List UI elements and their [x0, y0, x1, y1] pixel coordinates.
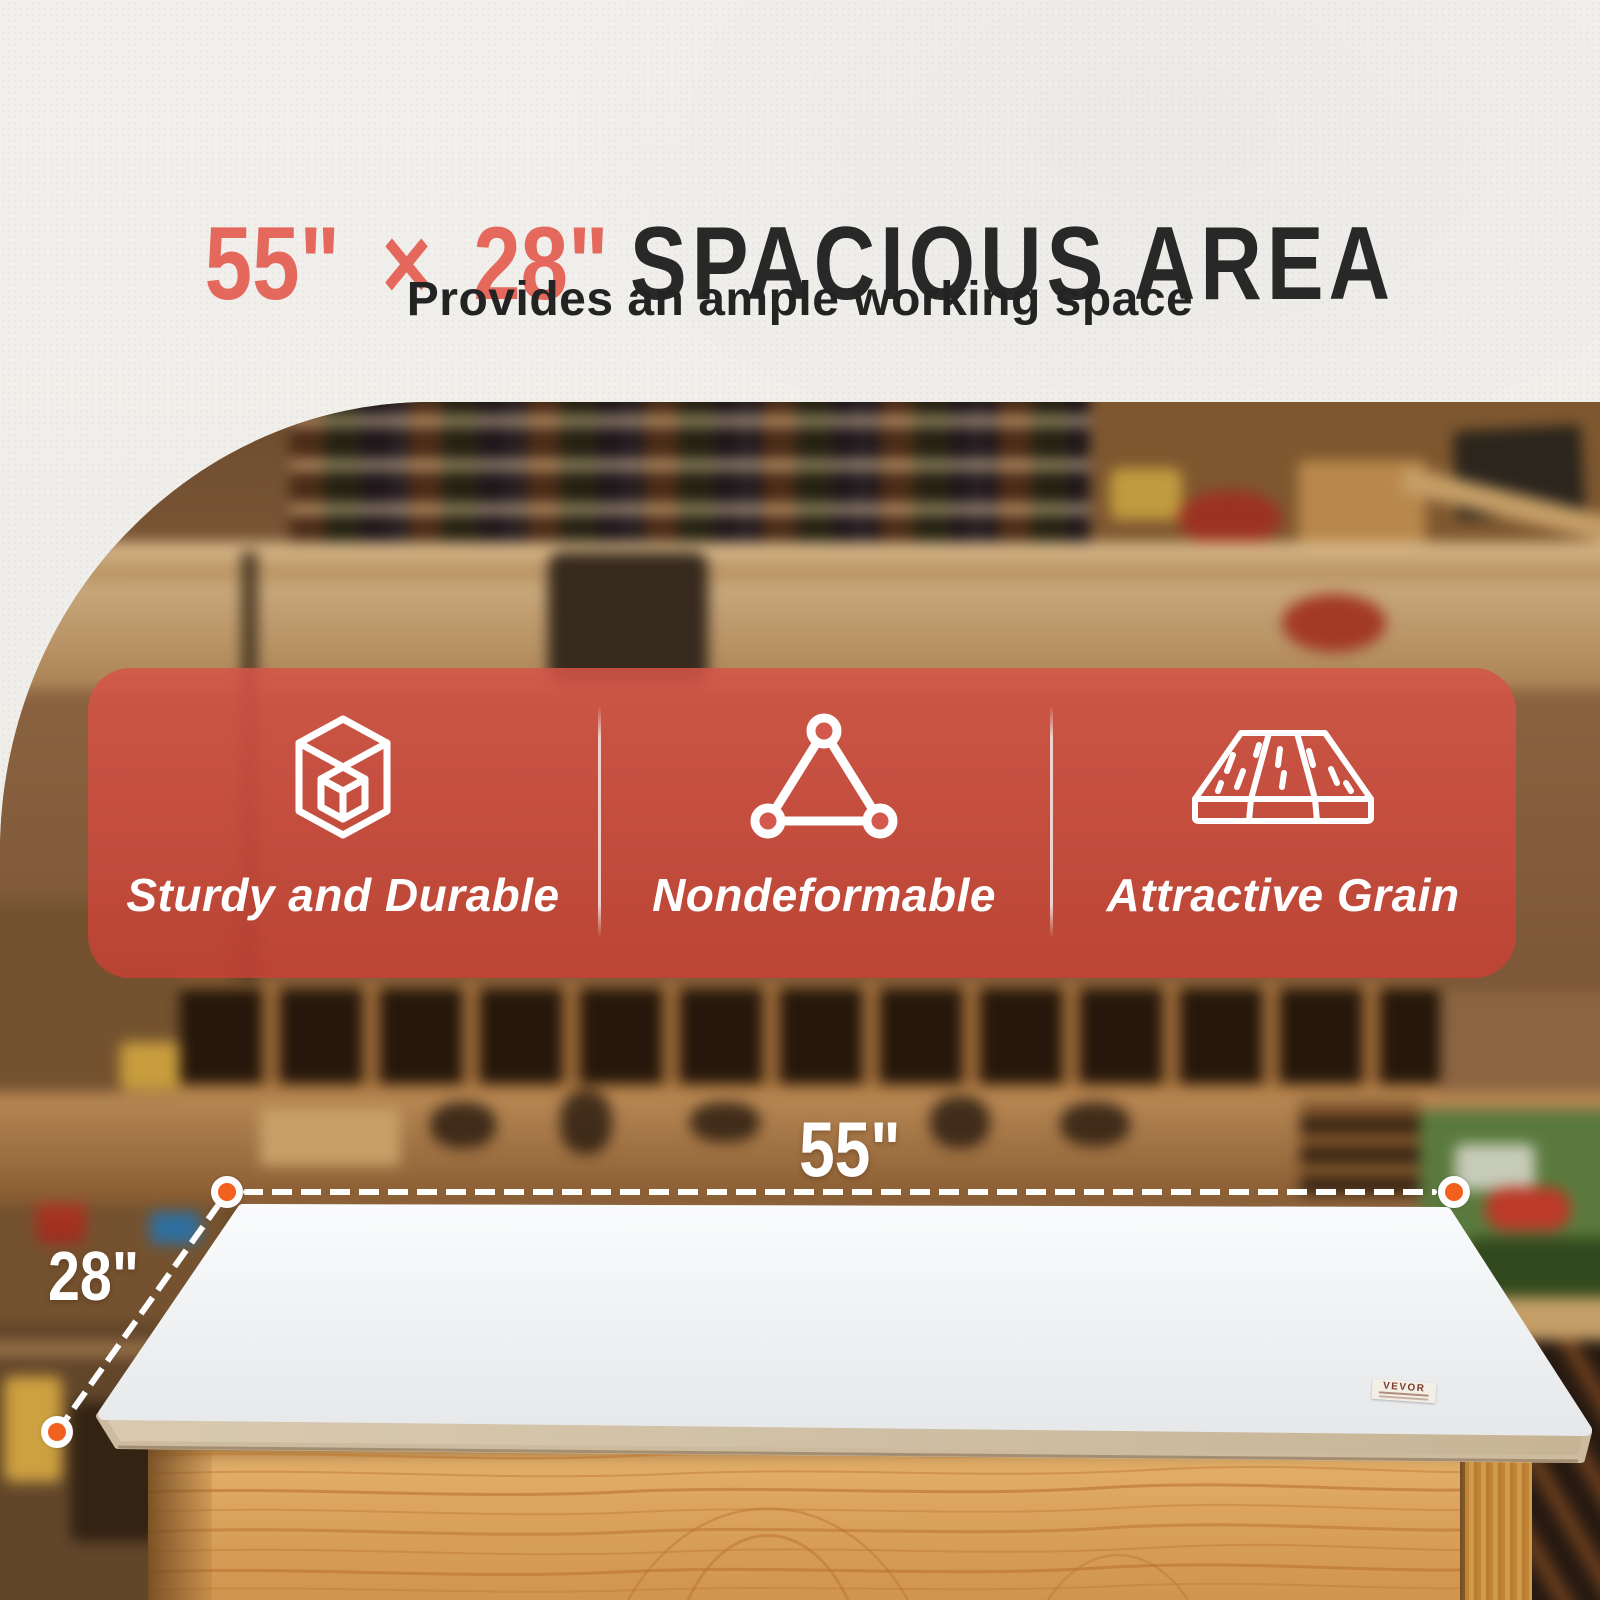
photo-blur-layer — [0, 402, 1600, 1600]
photo-shape — [290, 402, 1150, 548]
dimension-endpoint-dot — [1438, 1176, 1470, 1208]
wood-planks-icon — [1185, 696, 1381, 858]
triangle-nodes-icon — [749, 696, 899, 858]
photo-shape — [430, 1102, 496, 1148]
banner-divider — [1050, 706, 1053, 938]
photo-shape — [1178, 490, 1282, 546]
feature-label: Sturdy and Durable — [126, 868, 559, 922]
wood-grain — [148, 1444, 1532, 1600]
feature-label: Attractive Grain — [1106, 868, 1459, 922]
photo-shape — [548, 552, 708, 684]
dimension-endpoint-dot — [211, 1176, 243, 1208]
wood-base — [148, 1444, 1532, 1600]
photo-shape — [1420, 1297, 1600, 1343]
feature-item-grain: Attractive Grain — [1050, 668, 1516, 978]
photo-shape — [690, 1102, 760, 1142]
photo-shape — [1282, 594, 1386, 652]
width-dimension-label: 55" — [770, 1104, 930, 1195]
photo-shape — [0, 542, 1600, 580]
photo-shape — [930, 1096, 990, 1148]
wood-base-side — [148, 1444, 212, 1600]
subtitle: Provides an ample working space — [0, 272, 1600, 327]
feature-label: Nondeformable — [652, 868, 996, 922]
feature-item-nondeformable: Nondeformable — [598, 668, 1050, 978]
photo-shape — [180, 982, 1440, 1094]
banner-divider — [598, 706, 601, 938]
photo-shape — [1060, 1102, 1130, 1146]
photo-shape — [70, 1402, 160, 1542]
workshop-photo — [0, 402, 1600, 1600]
cube-frame-icon — [291, 696, 395, 858]
product-infographic: 55" × 28"SPACIOUS AREA Provides an ample… — [0, 0, 1600, 1600]
dimension-endpoint-dot — [41, 1416, 73, 1448]
photo-shape — [1485, 1187, 1571, 1231]
photo-shape — [1110, 468, 1182, 520]
photo-shape — [260, 1108, 400, 1166]
photo-shape — [120, 1042, 184, 1090]
photo-shape — [1300, 1102, 1420, 1194]
feature-banner: Sturdy and Durable Nondeformable — [88, 668, 1516, 978]
photo-shape — [560, 1090, 612, 1154]
wood-base-stile — [1460, 1450, 1532, 1600]
depth-dimension-label: 28" — [24, 1236, 164, 1316]
feature-item-sturdy: Sturdy and Durable — [88, 668, 598, 978]
photo-shape — [0, 1342, 208, 1356]
